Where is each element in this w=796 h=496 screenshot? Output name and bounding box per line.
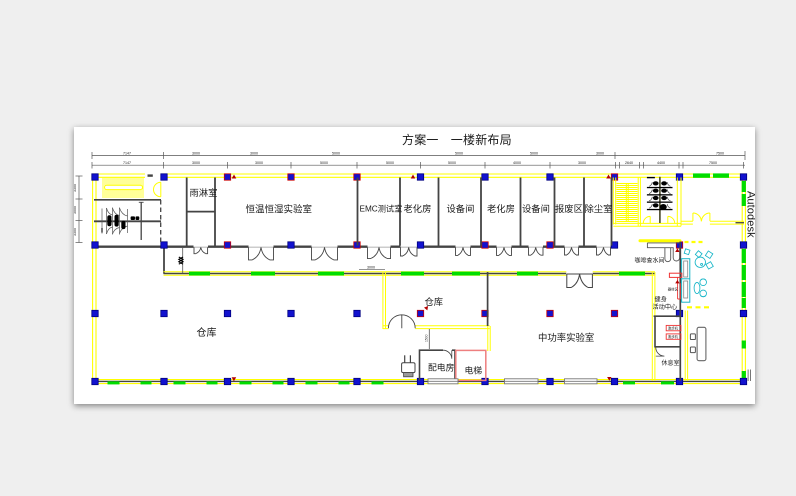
svg-text:7500: 7500 xyxy=(716,152,724,156)
svg-text:EMC测试室: EMC测试室 xyxy=(360,204,403,214)
svg-text:雨淋室: 雨淋室 xyxy=(190,187,218,198)
svg-text:5000: 5000 xyxy=(332,152,340,156)
svg-text:老化房: 老化房 xyxy=(487,203,515,214)
svg-text:5000: 5000 xyxy=(386,161,394,165)
svg-text:3000: 3000 xyxy=(367,265,375,269)
svg-text:5000: 5000 xyxy=(455,152,463,156)
svg-text:器材区: 器材区 xyxy=(668,286,679,291)
svg-text:3300: 3300 xyxy=(74,184,77,192)
svg-text:老化房: 老化房 xyxy=(404,203,432,214)
svg-text:电梯: 电梯 xyxy=(465,365,483,376)
svg-text:1500: 1500 xyxy=(425,334,429,342)
svg-text:报废区: 报废区 xyxy=(555,203,583,214)
svg-text:活动中心: 活动中心 xyxy=(653,303,678,311)
svg-text:5000: 5000 xyxy=(448,161,456,165)
svg-text:3300: 3300 xyxy=(74,228,77,236)
svg-text:5000: 5000 xyxy=(320,161,328,165)
svg-text:2640: 2640 xyxy=(625,161,633,165)
svg-text:3000: 3000 xyxy=(192,152,200,156)
svg-text:3000: 3000 xyxy=(192,161,200,165)
svg-text:3000: 3000 xyxy=(578,161,586,165)
svg-text:Autodesk: Autodesk xyxy=(745,191,756,238)
svg-text:除尘室: 除尘室 xyxy=(585,203,613,214)
svg-text:3000: 3000 xyxy=(74,206,77,214)
svg-text:咖啡查水间: 咖啡查水间 xyxy=(635,257,665,265)
svg-text:休息室: 休息室 xyxy=(662,359,680,367)
svg-text:配电房: 配电房 xyxy=(428,362,455,373)
svg-text:5000: 5000 xyxy=(530,152,538,156)
svg-text:3000: 3000 xyxy=(250,152,258,156)
svg-text:中功率实验室: 中功率实验室 xyxy=(538,332,594,343)
svg-text:仓库: 仓库 xyxy=(425,296,444,307)
svg-text:4400: 4400 xyxy=(657,161,665,165)
svg-text:3000: 3000 xyxy=(255,161,263,165)
svg-text:7500: 7500 xyxy=(709,161,717,165)
svg-text:7147: 7147 xyxy=(123,152,131,156)
svg-text:跑步机: 跑步机 xyxy=(668,326,678,331)
svg-text:跑步机: 跑步机 xyxy=(668,334,678,339)
svg-text:健身: 健身 xyxy=(655,296,667,304)
svg-text:4000: 4000 xyxy=(513,161,521,165)
svg-text:设备间: 设备间 xyxy=(522,203,550,214)
svg-text:7147: 7147 xyxy=(123,161,131,165)
svg-text:仓库: 仓库 xyxy=(197,326,217,339)
svg-text:设备间: 设备间 xyxy=(447,203,475,214)
svg-text:方案一 一楼新布局: 方案一 一楼新布局 xyxy=(402,132,512,147)
svg-text:恒温恒湿实验室: 恒温恒湿实验室 xyxy=(246,204,313,216)
svg-text:3000: 3000 xyxy=(596,152,604,156)
